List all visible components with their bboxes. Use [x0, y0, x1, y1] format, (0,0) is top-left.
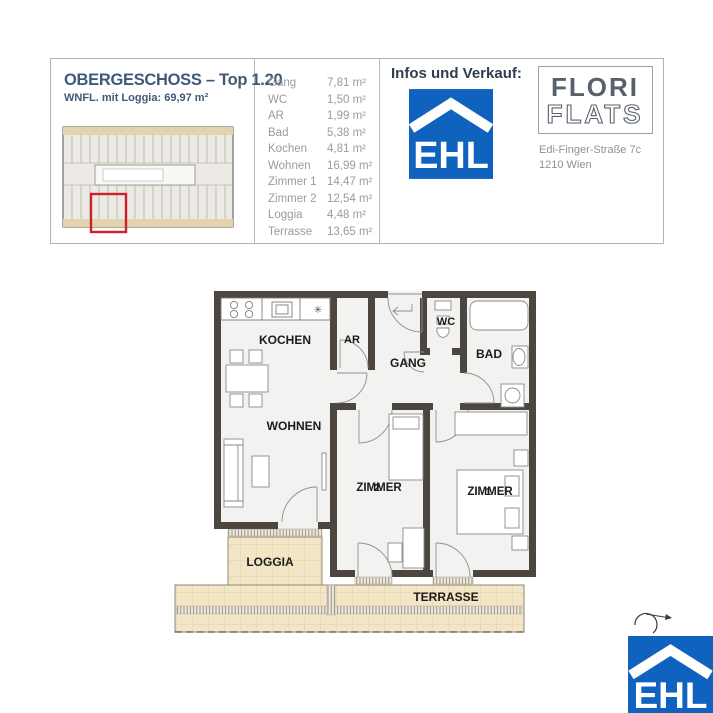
svg-text:FLATS: FLATS — [547, 99, 644, 129]
room-list-panel: Gang7,81 m² WC1,50 m² AR1,99 m² Bad5,38 … — [254, 59, 380, 243]
room-label-loggia: LOGGIA — [246, 555, 294, 569]
address-line2: 1210 Wien — [539, 158, 641, 173]
desk — [403, 528, 424, 568]
single-bed — [389, 414, 423, 480]
nightstand — [512, 536, 528, 550]
ehl-logo: EHL — [409, 89, 493, 179]
stove-burner-icon — [245, 301, 252, 308]
header-panel: OBERGESCHOSS – Top 1.20 WNFL. mit Loggia… — [50, 58, 664, 244]
unit-info-panel: OBERGESCHOSS – Top 1.20 WNFL. mit Loggia… — [51, 59, 255, 243]
sales-heading: Infos und Verkauf: — [391, 65, 522, 82]
sofa — [224, 439, 243, 507]
room-label-kochen: KOCHEN — [259, 333, 311, 347]
room-label-ar: AR — [344, 334, 360, 346]
sales-panel: Infos und Verkauf: EHL FLORI FLATS Edi-F… — [379, 59, 663, 243]
key-plan — [57, 123, 246, 239]
room-label-wc: WC — [437, 316, 455, 328]
coffee-table — [252, 456, 269, 487]
room-label-bad: BAD — [476, 347, 502, 361]
nightstand — [514, 450, 528, 466]
svg-text:FLORI: FLORI — [551, 72, 639, 102]
flori-flats-logo: FLORI FLATS — [538, 66, 653, 134]
floorplan-sheet: OBERGESCHOSS – Top 1.20 WNFL. mit Loggia… — [0, 0, 713, 713]
footer-brand: EHL — [613, 603, 713, 713]
double-bed — [457, 470, 523, 534]
page-title: OBERGESCHOSS – Top 1.20 — [64, 71, 249, 90]
room-list-row: Wohnen16,99 m² — [254, 160, 379, 177]
north-arrow-icon — [635, 614, 672, 633]
room-label-terrasse: TERRASSE — [413, 590, 478, 604]
bath-sink-icon — [512, 346, 528, 368]
terrace-window-band-right — [433, 577, 473, 584]
room-list-row: Gang7,81 m² — [254, 77, 379, 94]
svg-text:EHL: EHL — [634, 675, 708, 713]
chair — [388, 543, 402, 562]
stove-burner-icon — [230, 301, 237, 308]
room-list-row: WC1,50 m² — [254, 94, 379, 111]
floor-plan: ✳ — [170, 282, 570, 652]
sales-address: Edi-Finger-Straße 7c 1210 Wien — [539, 143, 641, 173]
room-label-wohnen: WOHNEN — [267, 419, 322, 433]
ehl-logo-footer: EHL — [628, 636, 713, 713]
room-list: Gang7,81 m² WC1,50 m² AR1,99 m² Bad5,38 … — [254, 77, 379, 242]
room-list-row: Bad5,38 m² — [254, 127, 379, 144]
room-label-gang: GANG — [390, 356, 426, 370]
room-number-zimmer-right: 1 — [485, 486, 491, 498]
address-line1: Edi-Finger-Straße 7c — [539, 143, 641, 158]
room-list-row: AR1,99 m² — [254, 110, 379, 127]
stove-burner-icon — [245, 310, 252, 317]
svg-text:EHL: EHL — [413, 135, 489, 177]
room-list-row: Zimmer 114,47 m² — [254, 176, 379, 193]
room-list-row: Zimmer 212,54 m² — [254, 193, 379, 210]
room-number-zimmer-left: 2 — [374, 482, 380, 494]
terrace-window-band-left — [355, 577, 392, 584]
unit-subtitle: WNFL. mit Loggia: 69,97 m² — [64, 92, 208, 104]
room-list-row: Terrasse13,65 m² — [254, 226, 379, 243]
bathtub-icon — [470, 301, 528, 330]
stove-burner-icon — [230, 310, 237, 317]
tv-board — [322, 453, 326, 490]
washing-machine-icon — [501, 384, 524, 407]
loggia-window-band — [228, 529, 322, 536]
room-list-row: Loggia4,48 m² — [254, 209, 379, 226]
room-list-row: Kochen4,81 m² — [254, 143, 379, 160]
wardrobe — [455, 412, 527, 435]
dishwasher-icon: ✳ — [314, 305, 322, 316]
